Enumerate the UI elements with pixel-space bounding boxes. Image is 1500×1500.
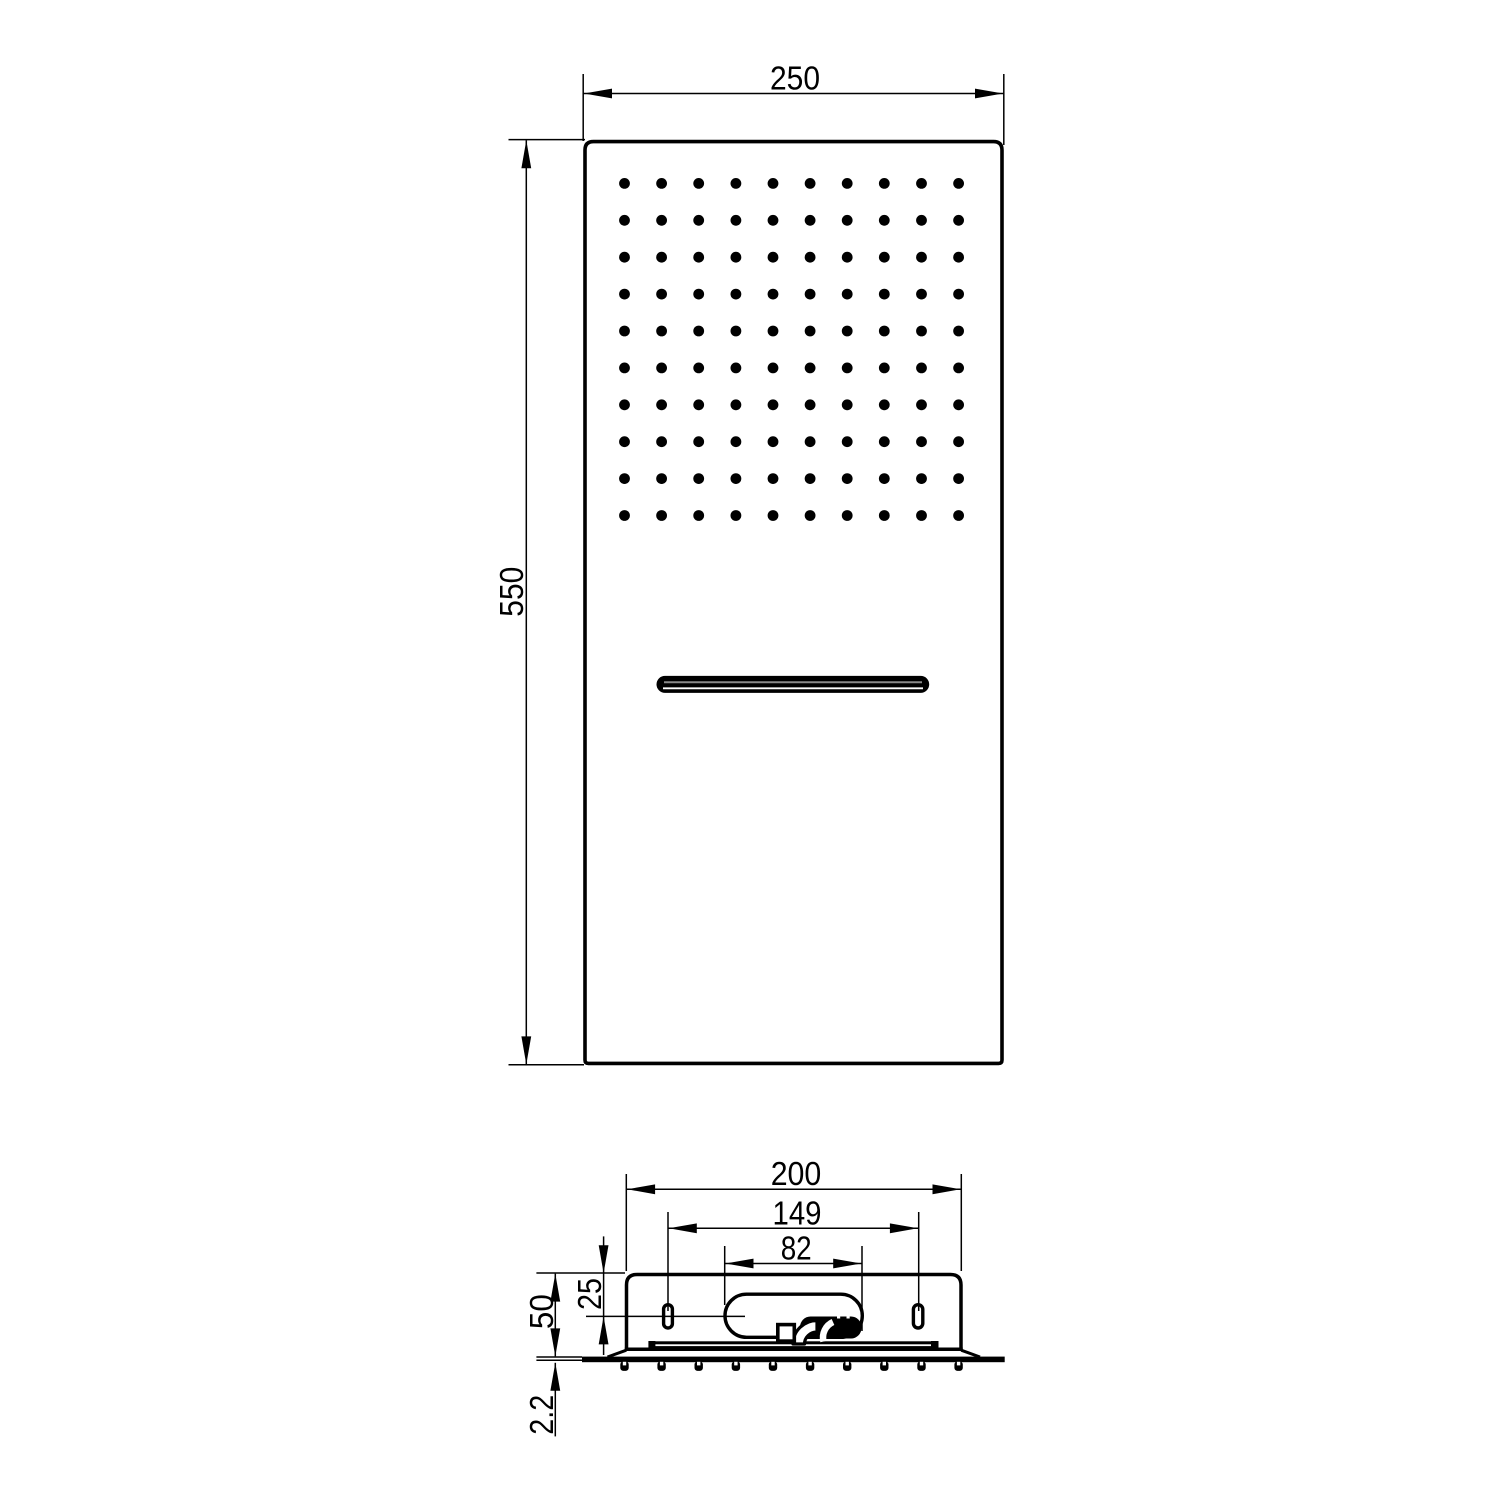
svg-text:82: 82 <box>781 1230 812 1267</box>
svg-text:2.2: 2.2 <box>523 1395 560 1435</box>
svg-text:149: 149 <box>773 1194 822 1231</box>
svg-text:200: 200 <box>771 1155 822 1192</box>
svg-text:50: 50 <box>523 1294 560 1329</box>
svg-text:550: 550 <box>493 567 530 617</box>
svg-text:250: 250 <box>770 60 820 97</box>
svg-text:25: 25 <box>571 1278 608 1310</box>
